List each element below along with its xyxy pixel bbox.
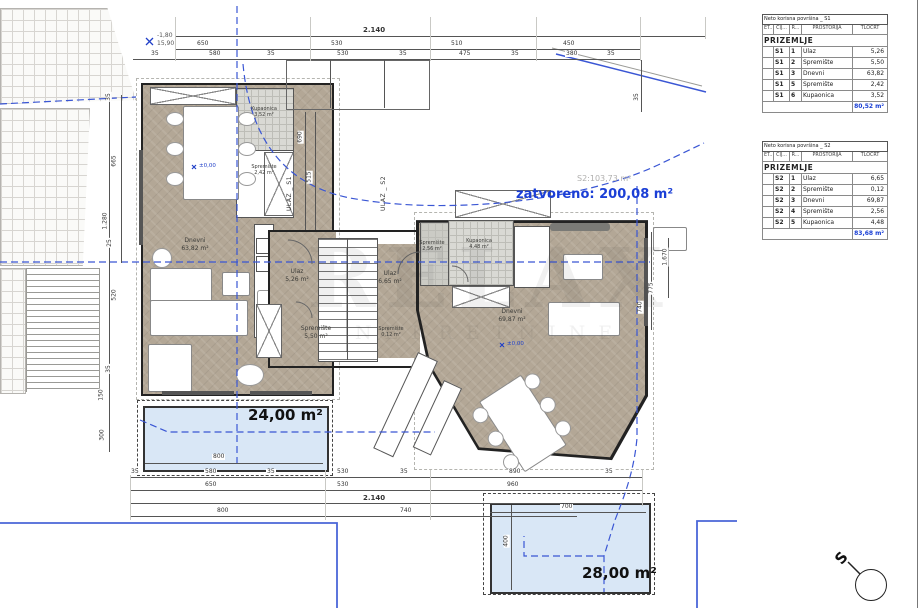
table-cell: S2 (774, 174, 790, 185)
col-header: R... (790, 152, 802, 162)
staircase (318, 238, 378, 362)
dim-label: 665 (112, 154, 118, 167)
col-header: ET... (763, 25, 774, 35)
col-header: TLOCRT (853, 152, 888, 162)
room-area: 5,26 m² (275, 276, 319, 284)
table-total: 80,52 m² (853, 102, 888, 113)
s2-gross-area-label: S2:103,73 m² (577, 174, 631, 183)
dim-label: 35 (106, 92, 112, 102)
level-marker-s1: ±0,00 (199, 163, 216, 169)
canopy-post-a (330, 60, 331, 108)
chair (166, 172, 184, 186)
dim-label: 800 (216, 508, 229, 514)
table-cell: 6,65 (853, 174, 888, 185)
table-section: PRIZEMLJE (763, 161, 888, 174)
table-total: 83,68 m² (853, 229, 888, 240)
coffee-table-s1 (222, 272, 250, 296)
table-body: S21Ulaz6,65S22Spremište0,12S23Dnevni69,8… (763, 174, 888, 229)
table-row: S22Spremište0,12 (763, 185, 888, 196)
room-label-s1-spremiste1: Spremište 5,50 m² (292, 325, 340, 340)
wardrobe-s1 (150, 87, 236, 105)
zatvoreno-area-label: zatvoreno: 200,08 m² (516, 187, 673, 202)
table-row: S24Spremište2,56 (763, 207, 888, 218)
dim-label: 890 (508, 469, 521, 475)
room-name: Ulaz (275, 268, 319, 276)
stair-divider (347, 238, 348, 360)
table-cell: S2 (774, 207, 790, 218)
table-cell (763, 58, 774, 69)
table-section: PRIZEMLJE (763, 34, 888, 47)
cabinet-s2 (514, 226, 550, 288)
dining-table-s1 (183, 106, 239, 200)
table-body: S11Ulaz5,26S12Spremište5,50S13Dnevni63,8… (763, 47, 888, 102)
table-cell: 5 (790, 218, 802, 229)
dim-label: 960 (506, 482, 519, 488)
table-row: S23Dnevni69,87 (763, 196, 888, 207)
shaft-s2 (452, 286, 510, 308)
room-area: 6,65 m² (368, 278, 412, 286)
bench-s1 (148, 344, 192, 392)
extension-line (430, 470, 431, 520)
table-cell: 5,50 (853, 58, 888, 69)
table-cell: 4 (790, 207, 802, 218)
room-name: Dnevni (484, 308, 540, 316)
table-cell: S1 (774, 91, 790, 102)
dim-line (490, 512, 646, 513)
table-cell: Kupaonica (802, 91, 853, 102)
table-row: S15Spremište2,42 (763, 80, 888, 91)
plot-boundary-southeast (697, 521, 737, 608)
room-label-s1-spremiste2: Spremište 2,42 m² (238, 164, 290, 177)
table-cell: Ulaz (802, 47, 853, 58)
dim-line-v (121, 95, 122, 263)
dim-label: 515 (307, 170, 313, 183)
plot-boundary-southwest (0, 523, 337, 608)
table-cell: Dnevni (802, 69, 853, 80)
dim-label: 690 (298, 130, 304, 143)
table-cell: S1 (774, 69, 790, 80)
room-name: Spremište (292, 325, 340, 333)
site-hatch-left (0, 108, 90, 266)
sofa-s1-chaise (150, 300, 248, 336)
dim-label: 520 (112, 288, 118, 301)
table-cell: 2,42 (853, 80, 888, 91)
col-header: CIJ... (774, 152, 790, 162)
table-cell: 69,87 (853, 196, 888, 207)
table-cell: 5,26 (853, 47, 888, 58)
room-area: 69,87 m² (484, 316, 540, 324)
area-table-s2: Neto korisna površina _ S2 ET... CIJ... … (762, 141, 887, 240)
canopy-post-b (384, 60, 385, 108)
dim-label: 775 (649, 281, 655, 294)
table-row: S25Kupaonica4,48 (763, 218, 888, 229)
room-label-s2-dnevni: Dnevni 69,87 m² (484, 308, 540, 323)
dim-line-v (641, 60, 642, 112)
dim-label: 740 (399, 508, 412, 514)
table-cell (763, 218, 774, 229)
dim-line (133, 59, 640, 60)
dim-line (130, 477, 642, 478)
room-label-s2-spremiste1: Spremište 0,12 m² (368, 326, 414, 339)
chair (166, 112, 184, 126)
table-footer-spacer (763, 102, 853, 113)
table-title: Neto korisna površina _ S2 (763, 142, 888, 152)
table-cell: 1 (790, 47, 802, 58)
benchmark-cross (146, 38, 153, 45)
dim-label: 1.280 (103, 211, 109, 230)
dim-line-v (109, 92, 110, 452)
table-cell: 3 (790, 69, 802, 80)
room-area: 2,56 m² (408, 246, 456, 252)
site-hatch-topleft (0, 8, 136, 104)
area-table-s1: Neto korisna površina _ S1 ET... CIJ... … (762, 14, 887, 113)
benchmark-upper: -1,80 (156, 33, 174, 39)
table-cell: S2 (774, 196, 790, 207)
sofa-s2 (548, 302, 620, 336)
room-label-s1-kupaonica: Kupaonica 3,52 m² (238, 106, 290, 119)
dim-label: 530 (336, 469, 349, 475)
dim-line (145, 463, 323, 464)
table-cell: 6 (790, 91, 802, 102)
table-cell: 3 (790, 196, 802, 207)
table-cell: 63,82 (853, 69, 888, 80)
room-label-s2-kupaonica: Kupaonica 4,48 m² (450, 238, 508, 251)
closet-entry (256, 304, 282, 358)
dim-line-v (315, 112, 316, 230)
col-header: PROSTORIJA (802, 25, 853, 35)
table-cell (763, 47, 774, 58)
dim-label: 580 (204, 469, 217, 475)
dim-line (175, 36, 705, 37)
room-label-s1-dnevni: Dnevni 63,82 m² (165, 237, 225, 252)
extension-line (640, 17, 641, 61)
table-row: S13Dnevni63,82 (763, 69, 888, 80)
table-cell: Ulaz (802, 174, 853, 185)
table-cell: Spremište (802, 80, 853, 91)
room-area: 63,82 m² (165, 245, 225, 253)
room-area: 3,52 m² (238, 112, 290, 118)
room-label-s1-ulaz: Ulaz 5,26 m² (275, 268, 319, 283)
coffee-table-s2 (563, 254, 603, 280)
window-s1-west (139, 150, 143, 245)
table-cell: 2 (790, 58, 802, 69)
dim-label: 35 (106, 364, 112, 374)
table-cell (763, 69, 774, 80)
table-cell: Dnevni (802, 196, 853, 207)
site-hatch-left-lower (0, 268, 26, 394)
level-marker-s2: ±0,00 (507, 341, 524, 347)
floor-plan-canvas: RELAX NEKRETNINE 2.140 650 530 510 450 3… (0, 0, 920, 608)
table-row: S16Kupaonica3,52 (763, 91, 888, 102)
table-row: S21Ulaz6,65 (763, 174, 888, 185)
dim-label: 35 (266, 51, 276, 57)
dim-label: 380 (565, 51, 578, 57)
dim-line-v (511, 505, 512, 590)
dim-label: 650 (204, 482, 217, 488)
dim-label: 510 (450, 41, 463, 47)
table-cell: S1 (774, 58, 790, 69)
dim-label: 700 (560, 504, 573, 510)
chair (166, 142, 184, 156)
table-cell: 1 (790, 174, 802, 185)
dim-label: 150 (99, 388, 105, 401)
dim-label: 35 (510, 51, 520, 57)
dim-label: 530 (330, 41, 343, 47)
dim-label: 530 (336, 482, 349, 488)
room-s2-kupaonica (448, 220, 514, 286)
compass-circle (855, 569, 887, 601)
pool1-area-label: 24,00 m² (248, 406, 323, 424)
dim-label: 530 (336, 51, 349, 57)
room-label-s2-spremiste2: Spremište 2,56 m² (408, 240, 456, 253)
extension-line (536, 17, 537, 61)
col-header: R... (790, 25, 802, 35)
dim-label: 2.140 (362, 27, 386, 34)
dim-line (130, 516, 577, 517)
dim-label: 740 (638, 300, 644, 313)
table-cell (763, 91, 774, 102)
dim-label: 2.140 (362, 495, 386, 502)
room-label-s2-ulaz: Ulaz 6,65 m² (368, 270, 412, 285)
terrain-steps (26, 268, 100, 392)
table-cell: 2 (790, 185, 802, 196)
entrance-label-s1: ULAZ _ S1 (286, 176, 293, 211)
room-area: 2,42 m² (238, 170, 290, 176)
room-area: 0,12 m² (368, 332, 414, 338)
table-row: S12Spremište5,50 (763, 58, 888, 69)
table-cell: S1 (774, 47, 790, 58)
room-area: 4,48 m² (450, 244, 508, 250)
ottoman-s1 (236, 364, 264, 386)
dim-line (130, 490, 642, 491)
dim-label: 35 (606, 51, 616, 57)
table-row: S11Ulaz5,26 (763, 47, 888, 58)
table-cell: Spremište (802, 58, 853, 69)
table-cell: Spremište (802, 185, 853, 196)
dim-label: 35 (604, 469, 614, 475)
extension-line (642, 470, 643, 506)
table-cell (763, 174, 774, 185)
dim-label: 475 (458, 51, 471, 57)
dim-label: 35 (150, 51, 160, 57)
dim-label: 35 (634, 92, 640, 102)
extension-line (130, 470, 131, 520)
table-cell: 3,52 (853, 91, 888, 102)
extension-line (175, 17, 176, 61)
window-s1-south-a (162, 391, 234, 395)
col-header: ET... (763, 152, 774, 162)
table-cell (763, 196, 774, 207)
table-cell (763, 80, 774, 91)
entrance-canopy (286, 60, 430, 110)
extension-line (430, 17, 431, 61)
dim-label: 25 (107, 238, 113, 248)
extension-line (325, 470, 326, 520)
table-footer-spacer (763, 229, 853, 240)
table-title: Neto korisna površina _ S1 (763, 15, 888, 25)
room-name: Ulaz (368, 270, 412, 278)
room-area: 5,50 m² (292, 333, 340, 341)
table-cell: 5 (790, 80, 802, 91)
sheet-right-border (917, 0, 918, 608)
dim-label: 580 (208, 51, 221, 57)
table-cell: Kupaonica (802, 218, 853, 229)
room-s2-spremiste2 (420, 222, 450, 286)
dim-label: 35 (266, 469, 276, 475)
table-cell: S1 (774, 80, 790, 91)
extension-line (705, 17, 706, 39)
table-cell: S2 (774, 185, 790, 196)
terrace-table-s2 (653, 227, 687, 251)
room-name: Dnevni (165, 237, 225, 245)
table-cell (763, 207, 774, 218)
dim-label: 35 (130, 469, 140, 475)
dim-label: 800 (212, 454, 225, 460)
chair (238, 142, 256, 156)
benchmark-lower: 15,90 (156, 41, 175, 47)
col-header: PROSTORIJA (802, 152, 853, 162)
tv-shelf-s2 (550, 223, 610, 231)
compass-north-label: S (831, 548, 852, 568)
col-header: TLOCRT (853, 25, 888, 35)
dim-label: 35 (398, 51, 408, 57)
dim-label: 400 (504, 534, 510, 547)
dim-label: 650 (196, 41, 209, 47)
dim-label: 450 (562, 41, 575, 47)
dim-label: 1.670 (663, 247, 669, 266)
table-cell: 4,48 (853, 218, 888, 229)
table-cell: S2 (774, 218, 790, 229)
extension-line (310, 17, 311, 61)
pool2-area-label: 28,00 m² (582, 564, 657, 582)
table-cell (763, 185, 774, 196)
dim-label: 300 (100, 428, 106, 441)
table-cell: 0,12 (853, 185, 888, 196)
table-cell: Spremište (802, 207, 853, 218)
table-cell: 2,56 (853, 207, 888, 218)
dim-label: 35 (399, 469, 409, 475)
window-s1-south-b (250, 391, 312, 395)
col-header: CIJ... (774, 25, 790, 35)
entrance-label-s2: ULAZ _ S2 (380, 176, 387, 211)
